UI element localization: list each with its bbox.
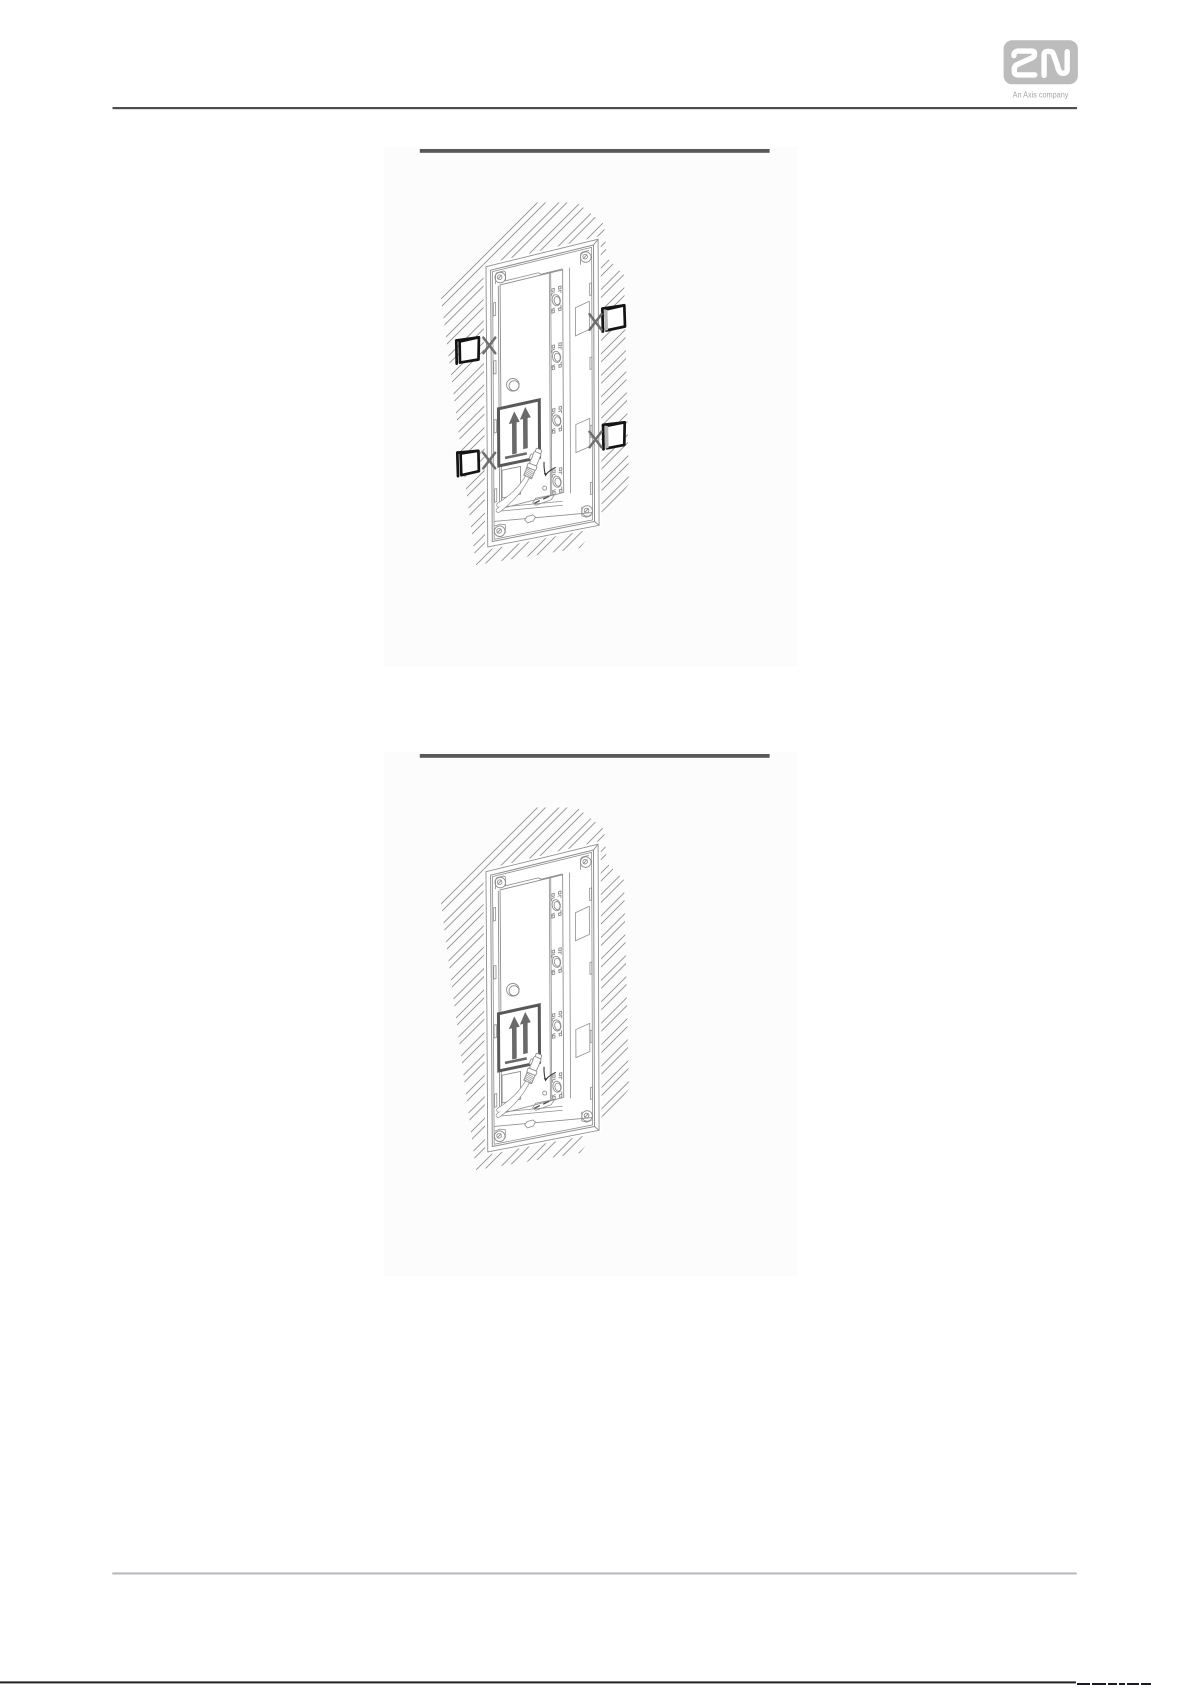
svg-text:An Axis company: An Axis company [1013, 90, 1069, 100]
